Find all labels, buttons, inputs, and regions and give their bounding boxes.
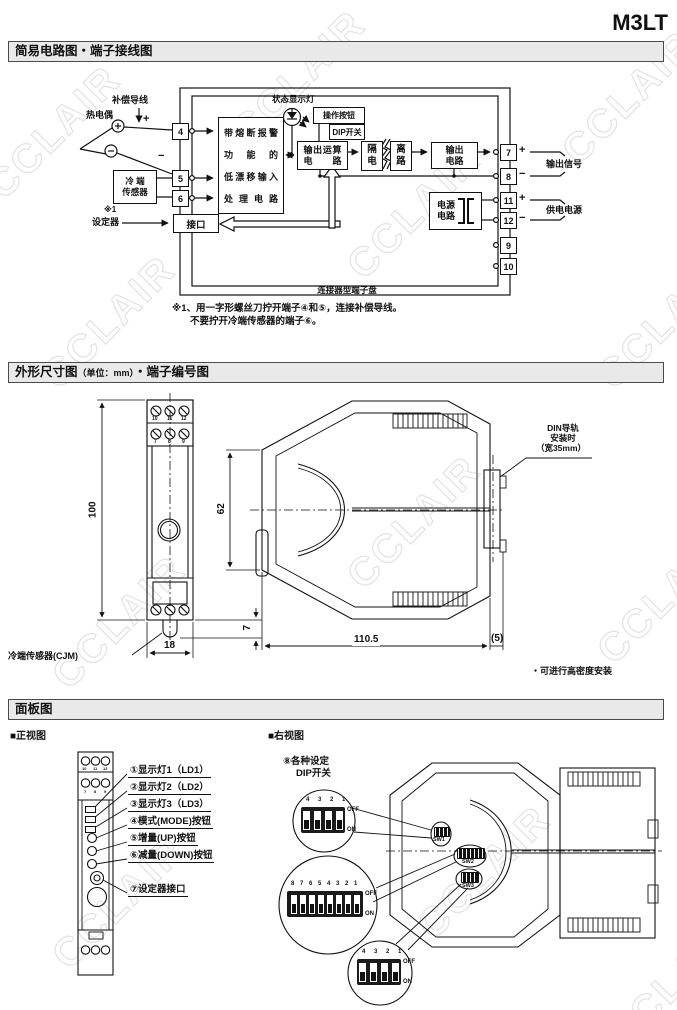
cold-sensor-line2: 传感器 [122,187,148,198]
sw1-block-icon [434,827,450,837]
sw1-label: SW1 [433,837,445,843]
front-label-ld2: ②显示灯2（LD2） [128,779,211,795]
terminal-5: 5 [172,170,189,187]
term-num-12: 12 [181,416,187,422]
dip2-slot [354,895,360,914]
terminal-12: 12 [500,212,517,229]
terminal-9: 9 [500,237,517,254]
output-circuit-box: 输出 电路 [431,142,478,169]
dip1-slot [325,811,332,830]
circuit-note-line1: ※1、用一字形螺丝刀拧开端子④和⑤，连接补偿导线。 [172,304,402,315]
led3 [85,826,96,833]
pterm-num-10: 10 [82,766,86,771]
isolation-box-left: 隔 电 [361,141,383,171]
sw3-label: SW3 [462,883,474,889]
dip1-slot [314,811,321,830]
terminal-board-label: 连接器型端子盘 [302,286,392,296]
calc-line1: 输出运算 [304,145,342,156]
operation-button-label: 操作按钮 [323,110,355,121]
term-num-10: 10 [152,416,158,422]
dip1-numbers: 4 3 2 1 [306,797,349,803]
sw2-block-icon [457,848,485,859]
dip-switch-box: DIP开关 [329,124,365,140]
output-calc-box: 输出运算 电 路 [297,141,348,170]
dip2-slot [345,895,351,914]
iso-char4: 路 [396,156,406,168]
dip-switch-sw3 [357,959,401,985]
compensation-wire-label: 补偿导线 [112,95,148,105]
dim-18: 18 [162,640,177,652]
dim-110-5: 110.5 [352,634,380,646]
section-header-circuit: 简易电路图・端子接线图 [8,41,664,62]
pterm-num-11: 11 [93,766,97,771]
dims-header-unit: （单位：mm） [78,368,135,378]
terminal-8: 8 [500,168,517,185]
input-box-line3: 低漂移输入 [224,166,278,188]
sw3-block-icon [461,872,479,883]
front-view-title: ■正视图 [10,731,46,743]
section-header-panel: 面板图 [8,699,664,720]
dip1-slot [336,811,343,830]
dip3-slot [392,963,399,982]
dip2-slot [309,895,315,914]
dim-7: 7 [242,625,254,631]
dims-header-tail: ・端子编号图 [134,365,209,379]
dip3-on-label: ON [403,979,412,985]
psu-text: 电源 电路 [437,200,455,222]
high-density-note: ・可进行高密度安装 [531,666,612,676]
out-plus: + [519,144,525,157]
dip2-numbers: 8 7 6 5 4 3 2 1 [291,881,359,887]
interface-label: 接口 [186,217,205,231]
dim-100: 100 [88,501,100,518]
dip1-on-label: ON [347,827,356,833]
iso-char3: 离 [396,144,406,156]
setter-label: 设定器 [92,217,119,227]
input-box-line4: 处理电路 [224,188,278,210]
iso-char2: 电 [367,156,377,168]
dims-header-main: 外形尺寸图 [15,365,78,379]
term-num-11: 11 [167,416,172,422]
front-label-ld1: ①显示灯1（LD1） [128,762,211,778]
dip-switch-sw1 [301,807,345,833]
terminal-10: 10 [500,258,517,275]
led2 [85,816,96,823]
dip3-slot [370,963,377,982]
out-minus: − [519,168,525,181]
psu-plus: + [519,192,525,205]
transformer-icon [458,198,474,224]
front-label-down: ⑥减量(DOWN)按钮 [128,847,214,863]
output-line2: 电路 [445,156,463,167]
sw2-label: SW2 [462,859,474,865]
dip-setting-label-2: DIP开关 [296,769,331,780]
interface-box: 接口 [173,214,219,233]
dip-setting-label-1: ⑧各种设定 [283,757,329,768]
status-lamp-label: 状态显示灯 [272,95,315,105]
supply-power-label: 供电电源 [546,205,582,215]
psu-line2: 电路 [437,211,455,222]
dip2-off-label: OFF [365,891,377,897]
operation-button-box: 操作按钮 [313,107,365,124]
dimension-front-view [97,393,262,658]
iso-char1: 隔 [367,144,377,156]
dip-switch-sw2 [287,891,363,917]
section-header-dimensions: 外形尺寸图（单位：mm）・端子编号图 [8,362,664,383]
note1-mark: ※1 [104,205,116,214]
dip1-slot [303,811,310,830]
cjm-label: 冷端传感器(CJM) [8,651,78,661]
front-label-setter-port: ⑦设定器接口 [128,881,188,897]
dip3-slot [381,963,388,982]
din-rail-label-3: （宽35mm） [528,444,594,454]
dim-5: (5) [491,633,503,645]
dip2-slot [336,895,342,914]
dip1-off-label: OFF [347,807,359,813]
cold-sensor-line1: 冷 端 [125,176,144,187]
page-title: M3LT [612,10,668,36]
front-label-ld3: ③显示灯3（LD3） [128,796,211,812]
pterm-num-8: 8 [94,789,96,794]
dip3-numbers: 4 3 2 1 [362,949,405,955]
calc-line2: 电 路 [304,156,342,167]
input-processing-box: 带熔断报警 功 能 的 低漂移输入 处理电路 [218,117,284,214]
term-num-7: 7 [154,439,157,445]
output-line1: 输出 [445,145,463,156]
led1 [85,806,96,813]
circuit-note-line2: 不要拧开冷端传感器的端子⑥。 [190,317,322,328]
dim-62: 62 [216,501,228,516]
panel-front-view [78,752,127,975]
terminal-7: 7 [500,144,517,161]
dip2-on-label: ON [365,911,374,917]
dip3-slot [359,963,366,982]
terminal-6: 6 [172,190,189,207]
dip-switch-label: DIP开关 [332,127,361,138]
dip2-slot [327,895,333,914]
minus-sign: − [158,150,164,163]
cold-junction-sensor-box: 冷 端 传感器 [113,170,157,204]
right-view-title: ■右视图 [268,731,304,743]
dip2-slot [300,895,306,914]
term-num-9: 9 [182,439,185,445]
power-supply-box: 电源 电路 [429,192,482,230]
psu-line1: 电源 [437,200,455,211]
front-label-up: ⑤增量(UP)按钮 [128,830,198,846]
term-num-8: 8 [168,439,171,445]
pterm-num-9: 9 [104,789,106,794]
thermocouple-label: 热电偶 [86,110,113,120]
psu-minus: − [519,212,525,225]
terminal-11: 11 [500,192,517,209]
dip2-slot [291,895,297,914]
pterm-num-7: 7 [84,789,86,794]
dip3-off-label: OFF [403,959,415,965]
pterm-num-12: 12 [103,766,107,771]
datasheet-page: CCLAIR CCLAIR CCLAIR CCLAIR CCLAIR CCLAI… [0,0,677,1010]
front-label-mode: ④模式(MODE)按钮 [128,813,213,829]
dip2-slot [318,895,324,914]
input-box-line2: 功 能 的 [224,144,278,166]
output-signal-label: 输出信号 [546,159,582,169]
terminal-4: 4 [172,123,189,140]
isolation-box-right: 离 路 [390,141,412,171]
plus-sign: + [143,113,149,126]
input-box-line1: 带熔断报警 [224,122,278,144]
